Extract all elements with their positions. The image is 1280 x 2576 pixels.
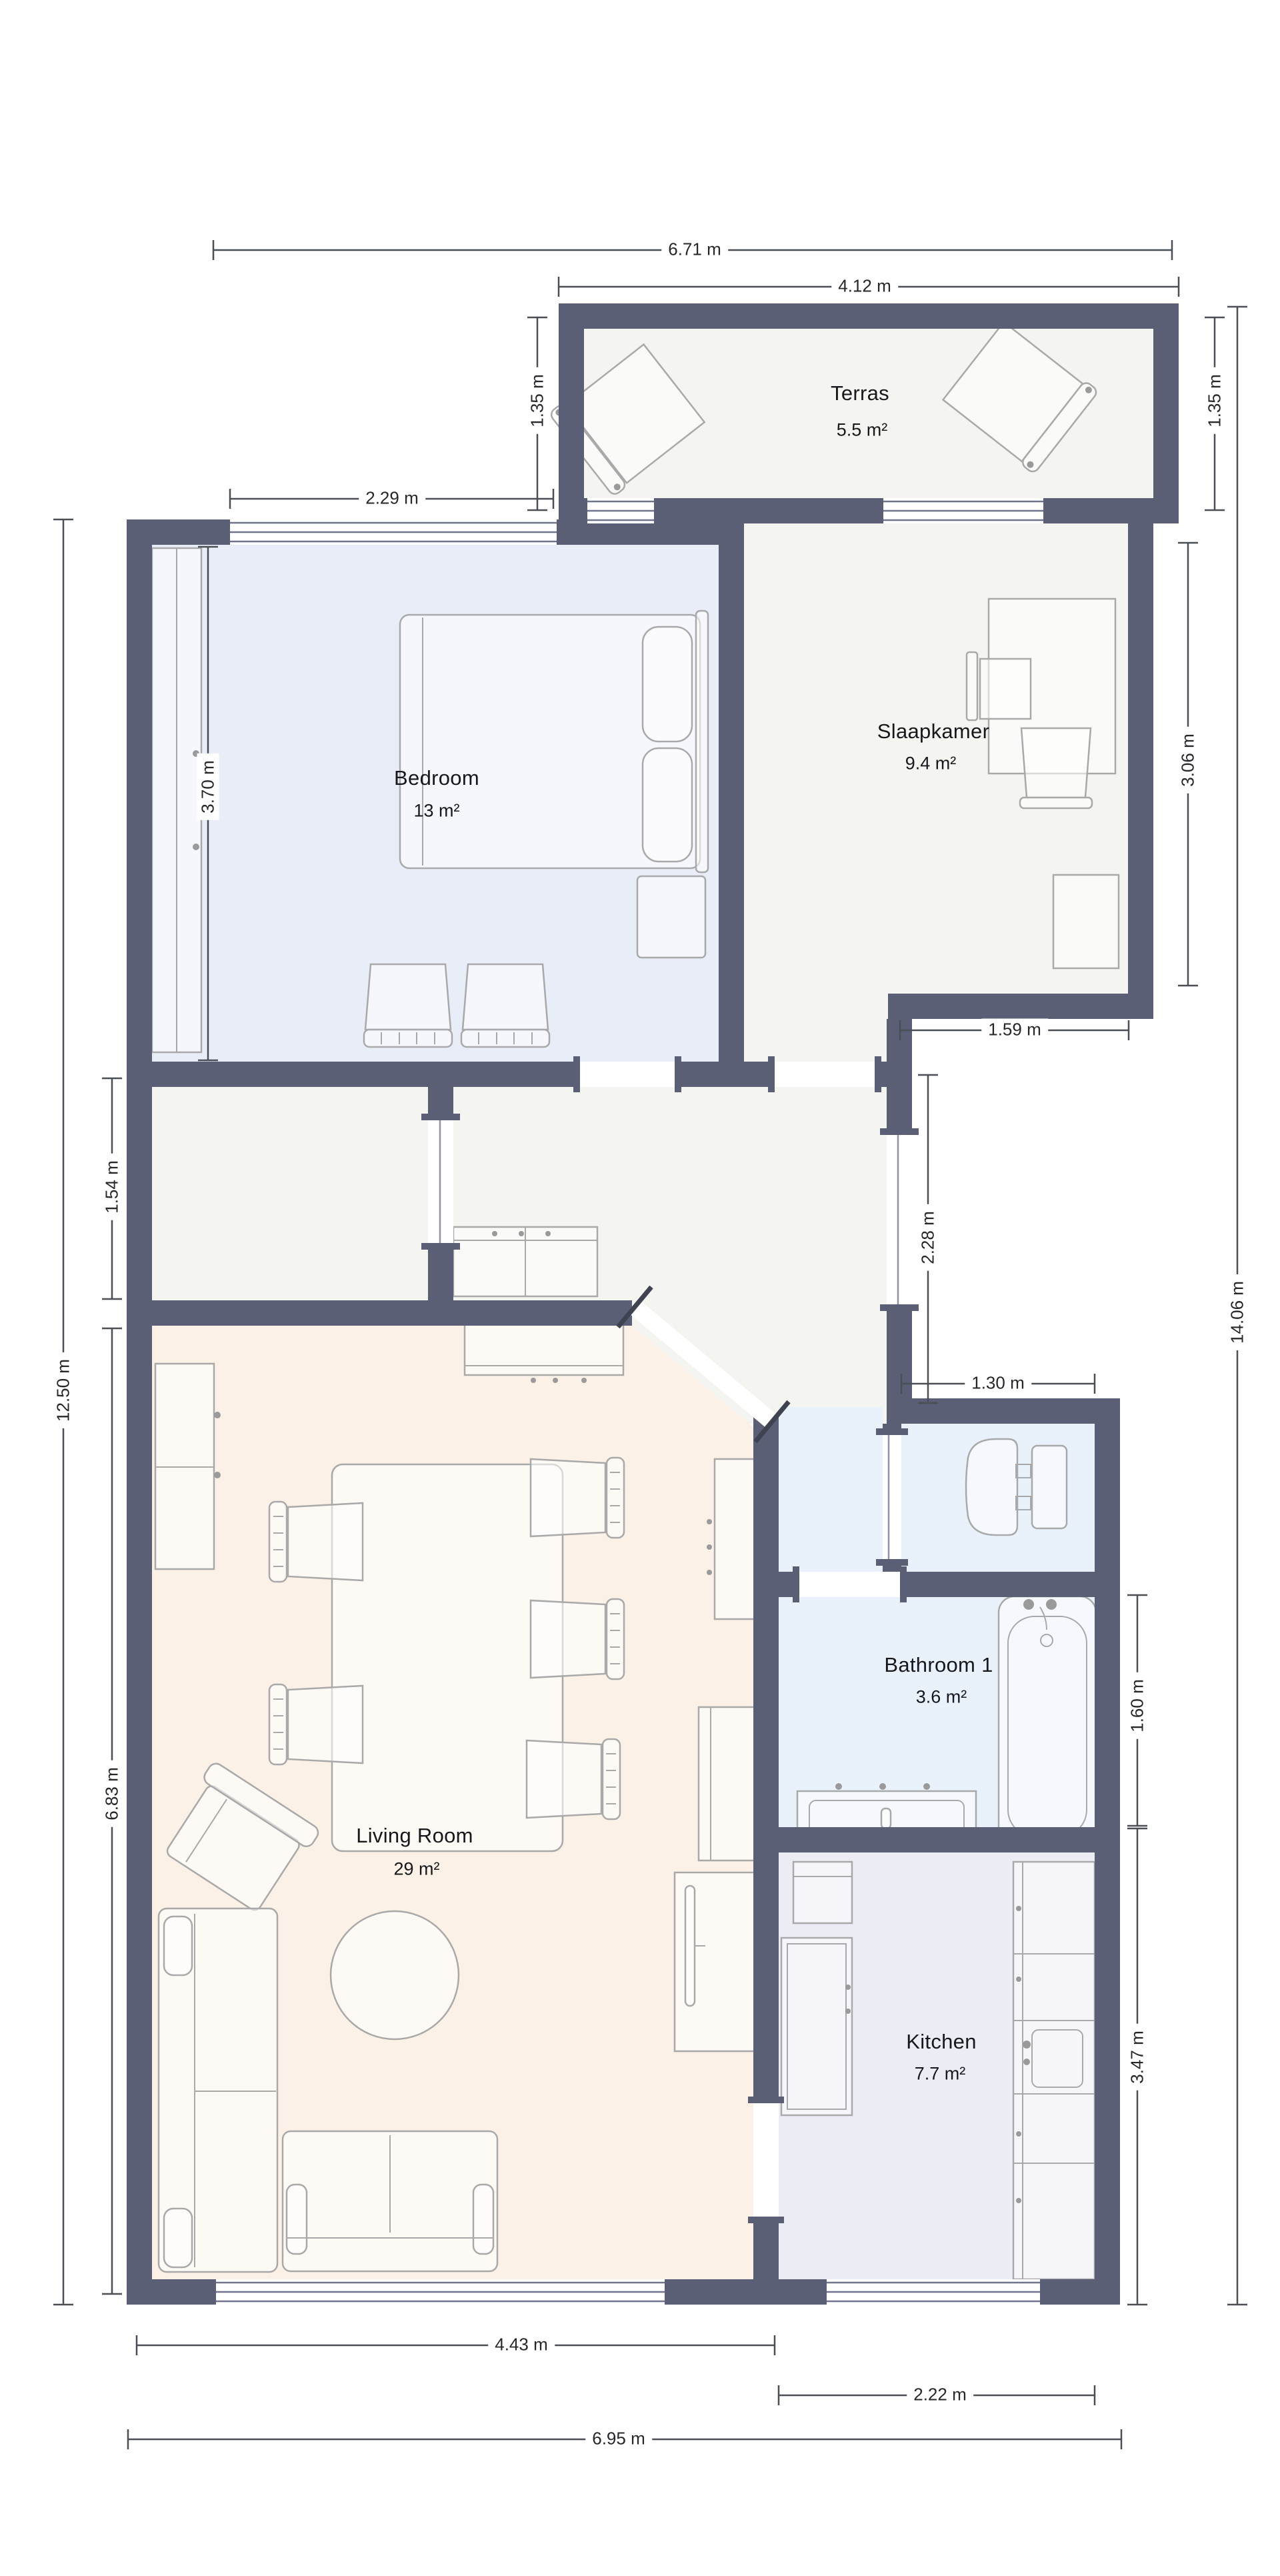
terrace-window-left	[587, 498, 654, 523]
room-area-living-room: 29 m²	[393, 1859, 439, 1880]
dimension-label: 2.29 m	[359, 487, 425, 509]
dimension-line	[137, 2335, 775, 2355]
dimension-label: 12.50 m	[53, 1352, 75, 1428]
room-label-bedroom: Bedroom	[394, 766, 479, 790]
dimension-label: 3.06 m	[1177, 727, 1199, 794]
room-area-kitchen: 7.7 m²	[915, 2064, 966, 2085]
dining-chair-left-2	[269, 1684, 363, 1764]
room-area-slaapkamer: 9.4 m²	[905, 754, 957, 774]
slaapkamer-cabinet	[1053, 875, 1119, 968]
bedroom-wardrobe	[152, 548, 201, 1052]
dimension-label: 4.12 m	[831, 275, 898, 297]
bed	[400, 611, 708, 872]
dimension-label: 1.35 m	[527, 367, 549, 434]
floor-plan: Terras5.5 m²Bedroom13 m²Slaapkamer9.4 m²…	[0, 0, 1280, 2576]
slaapkamer-door-opening	[768, 1056, 881, 1092]
dimension-label: 3.47 m	[1127, 2024, 1149, 2091]
kitchen-fridge	[781, 1938, 852, 2115]
living-sideboard-top	[465, 1319, 623, 1383]
dimension-label: 1.54 m	[101, 1154, 123, 1220]
dining-chair-right-3	[527, 1739, 620, 1819]
dimension-label: 1.60 m	[1127, 1672, 1149, 1739]
bedroom-chair-1	[364, 964, 452, 1047]
bedroom-window	[230, 519, 557, 545]
tv-cabinet	[675, 1872, 755, 2051]
room-label-terras: Terras	[831, 381, 889, 405]
living-window	[216, 2279, 665, 2305]
dimension-label: 1.35 m	[1204, 367, 1226, 434]
bathroom-door-opening	[793, 1566, 907, 1602]
slaapkamer-chair	[1020, 728, 1092, 808]
sofa-loveseat	[283, 2131, 497, 2271]
lobby-floor	[779, 1407, 883, 1572]
dimension-label: 4.43 m	[488, 2334, 555, 2356]
kitchen-window	[827, 2279, 1040, 2305]
dimension-label: 14.06 m	[1227, 1274, 1249, 1350]
dining-chair-right-1	[531, 1458, 624, 1538]
slaapkamer-floor-ext	[744, 994, 888, 1062]
dimension-label: 1.30 m	[965, 1372, 1031, 1394]
dining-chair-left-1	[269, 1502, 363, 1582]
kitchen-door-opening	[748, 2097, 784, 2223]
dimension-label: 2.28 m	[917, 1204, 939, 1271]
bathtub	[999, 1596, 1096, 1847]
floor-plan-canvas	[0, 0, 1280, 2576]
dimension-label: 2.22 m	[907, 2384, 973, 2406]
dimension-label: 1.59 m	[981, 1019, 1048, 1041]
dimension-label: 3.70 m	[197, 754, 219, 820]
dimension-label: 6.71 m	[661, 239, 728, 261]
dimension-label: 6.83 m	[101, 1760, 123, 1827]
kitchen-upper-cabinet	[793, 1862, 852, 1923]
room-label-living-room: Living Room	[356, 1824, 473, 1848]
room-label-slaapkamer: Slaapkamer	[877, 720, 989, 744]
dining-chair-right-2	[531, 1599, 624, 1679]
kitchen-counter	[1013, 1862, 1095, 2279]
sofa-sectional	[159, 1908, 277, 2272]
bedroom-chair-2	[461, 964, 549, 1047]
toilet	[966, 1439, 1067, 1535]
room-area-bathroom-1: 3.6 m²	[916, 1687, 967, 1708]
terrace-window-right	[883, 498, 1043, 523]
room-label-bathroom-1: Bathroom 1	[884, 1653, 993, 1677]
dimension-label: 6.95 m	[585, 2428, 652, 2450]
bedroom-bench	[637, 876, 705, 958]
room-label-kitchen: Kitchen	[906, 2030, 977, 2054]
room-area-bedroom: 13 m²	[413, 801, 459, 822]
hall-sideboard	[453, 1227, 597, 1296]
living-sideboard-left	[155, 1364, 221, 1569]
coffee-table	[331, 1911, 459, 2039]
bedroom-door-opening	[573, 1056, 681, 1092]
room-area-terras: 5.5 m²	[837, 420, 888, 441]
